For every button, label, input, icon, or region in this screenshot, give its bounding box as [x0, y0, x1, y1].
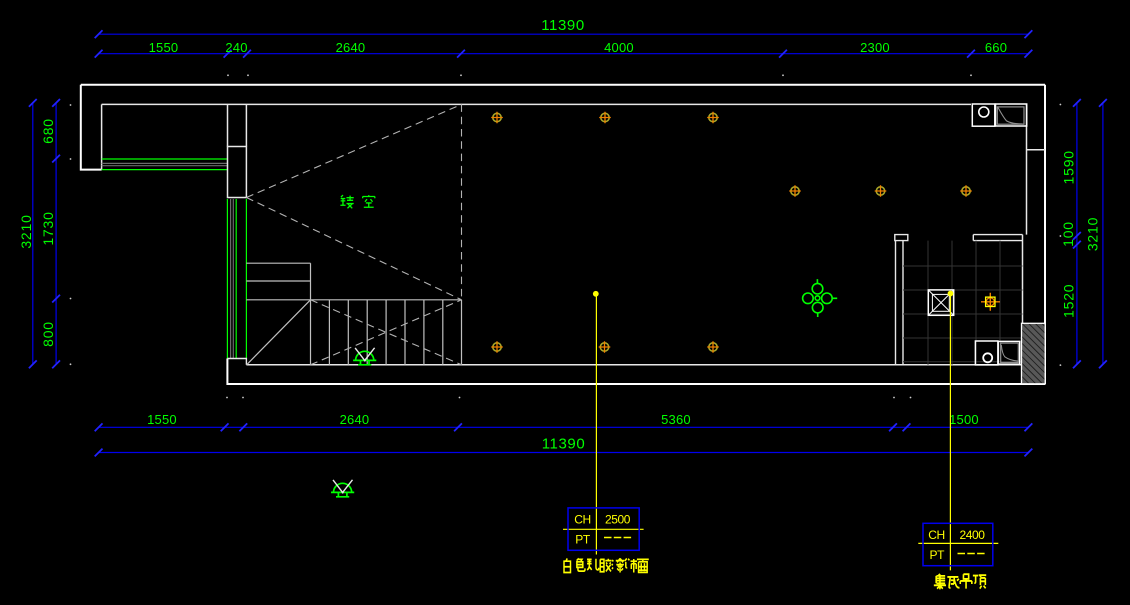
- svg-text:240: 240: [225, 40, 247, 55]
- svg-text:PT: PT: [575, 532, 591, 546]
- svg-text:1590: 1590: [1061, 150, 1077, 184]
- svg-text:5360: 5360: [661, 412, 691, 427]
- svg-text:1550: 1550: [147, 412, 177, 427]
- svg-text:2500: 2500: [605, 512, 631, 526]
- svg-text:680: 680: [40, 118, 56, 144]
- svg-text:1500: 1500: [949, 412, 979, 427]
- svg-text:800: 800: [40, 321, 56, 347]
- svg-text:2300: 2300: [860, 40, 890, 55]
- svg-text:3210: 3210: [18, 214, 34, 248]
- svg-text:1550: 1550: [149, 40, 179, 55]
- svg-text:660: 660: [985, 40, 1007, 55]
- svg-text:2400: 2400: [959, 528, 985, 542]
- svg-text:PT: PT: [930, 548, 946, 562]
- svg-text:11390: 11390: [542, 436, 586, 453]
- svg-text:100: 100: [1060, 221, 1076, 247]
- svg-text:CH: CH: [928, 528, 945, 542]
- svg-text:2640: 2640: [340, 412, 370, 427]
- svg-text:11390: 11390: [541, 17, 585, 34]
- svg-text:3210: 3210: [1085, 217, 1101, 251]
- svg-text:1730: 1730: [40, 211, 56, 245]
- svg-text:1520: 1520: [1061, 284, 1077, 318]
- svg-text:2640: 2640: [336, 40, 366, 55]
- svg-text:CH: CH: [574, 513, 591, 527]
- svg-text:4000: 4000: [604, 40, 634, 55]
